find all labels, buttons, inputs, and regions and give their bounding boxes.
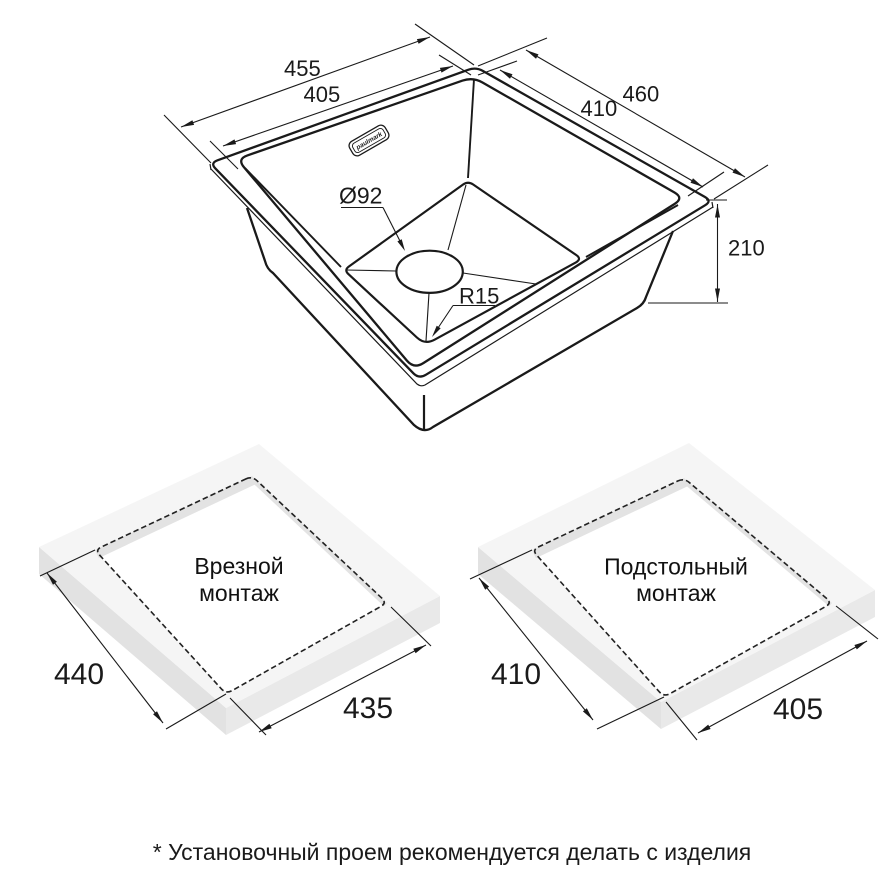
svg-text:Врезной: Врезной <box>194 553 283 579</box>
svg-text:Подстольный: Подстольный <box>604 554 748 580</box>
svg-text:455: 455 <box>284 56 321 81</box>
svg-text:410: 410 <box>581 96 618 121</box>
svg-text:* Установочный проем рекоменду: * Установочный проем рекомендуется делат… <box>153 839 752 865</box>
svg-text:440: 440 <box>54 658 104 691</box>
svg-text:435: 435 <box>343 692 393 725</box>
svg-text:R15: R15 <box>459 283 499 308</box>
svg-text:монтаж: монтаж <box>199 580 279 606</box>
svg-text:Ø92: Ø92 <box>339 183 382 209</box>
svg-text:410: 410 <box>491 658 541 691</box>
svg-text:210: 210 <box>728 236 765 261</box>
svg-text:405: 405 <box>304 82 341 107</box>
svg-text:монтаж: монтаж <box>636 580 716 606</box>
svg-text:405: 405 <box>773 693 823 726</box>
svg-text:460: 460 <box>623 82 660 107</box>
